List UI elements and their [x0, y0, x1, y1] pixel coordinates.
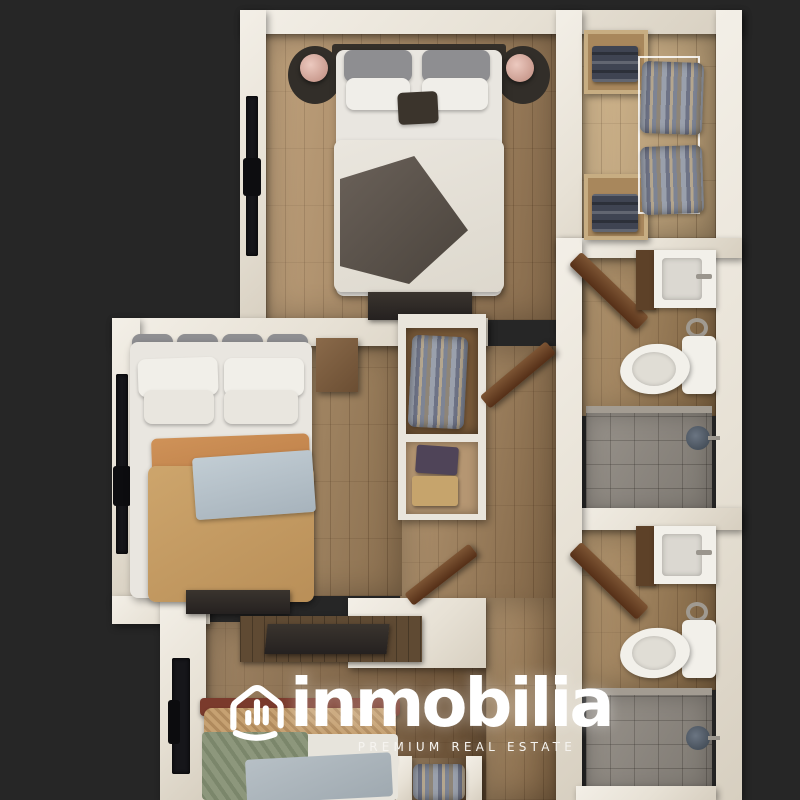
bathroom2-sink-basin	[662, 534, 702, 576]
wardrobe-hanging-clothes	[408, 335, 469, 430]
closet-nook-right-wall	[466, 756, 482, 800]
brand-wordmark: inmobilia	[290, 670, 612, 737]
bathroom2-faucet	[696, 550, 712, 555]
master-accent-cushion	[397, 91, 439, 125]
closet-nook-hanging-clothes	[413, 764, 465, 800]
inmobilia-logo: inmobilia PREMIUM REAL ESTATE	[224, 664, 580, 760]
bedroom2-pillow-small-right	[224, 390, 298, 424]
bathroom2-vanity	[636, 526, 656, 586]
bathroom1-toilet-seat	[632, 352, 676, 386]
bathroom2-bottom-wall	[576, 786, 716, 800]
bathroom1-sink-basin	[662, 258, 702, 300]
bathroom2-shower-arm	[708, 736, 720, 740]
bathroom1-shower-arm	[708, 436, 720, 440]
bedroom2-nightstand	[316, 338, 358, 392]
bathroom1-faucet	[696, 274, 712, 279]
bedroom2-bed	[128, 334, 314, 600]
master-window-handle	[243, 158, 261, 196]
logo-house-icon	[224, 676, 290, 748]
bathroom1-shower-head	[686, 426, 710, 450]
lamp-right	[506, 54, 534, 82]
hanging-clothes-bottom	[640, 145, 704, 215]
wardrobe-folded-item-tan	[412, 476, 458, 506]
master-bed	[336, 44, 502, 296]
closet-towels-bottom	[592, 194, 638, 232]
bathroom1-flush-plate	[686, 318, 708, 338]
outer-wall-top	[240, 10, 742, 34]
bathroom1-sink	[654, 250, 716, 308]
bedroom3-tv	[264, 624, 389, 654]
lamp-left	[300, 54, 328, 82]
bedroom2-pillow-small-left	[144, 390, 214, 424]
closet-nook-left-wall	[396, 756, 412, 800]
closet-towels-top	[592, 46, 638, 82]
hallway-wardrobe	[398, 314, 486, 520]
outer-wall-right	[716, 10, 742, 800]
bathroom2-flush-plate	[686, 602, 708, 622]
bathroom2-sink	[654, 526, 716, 584]
bathroom1-vanity	[636, 250, 656, 310]
wardrobe-folded-item-purple	[415, 445, 459, 476]
bedroom2-desk	[186, 590, 290, 614]
bedroom3-window-handle	[168, 700, 180, 744]
floorplan-render: inmobilia PREMIUM REAL ESTATE	[0, 0, 800, 800]
bedroom2-blanket-blue	[192, 450, 316, 520]
bedroom2-window	[116, 374, 128, 554]
bathroom2-toilet-seat	[632, 636, 676, 670]
bathroom1-shower-floor	[586, 406, 712, 513]
hanging-clothes-top	[640, 61, 704, 135]
bathroom2-shower-head	[686, 726, 710, 750]
brand-tagline: PREMIUM REAL ESTATE	[290, 740, 576, 754]
